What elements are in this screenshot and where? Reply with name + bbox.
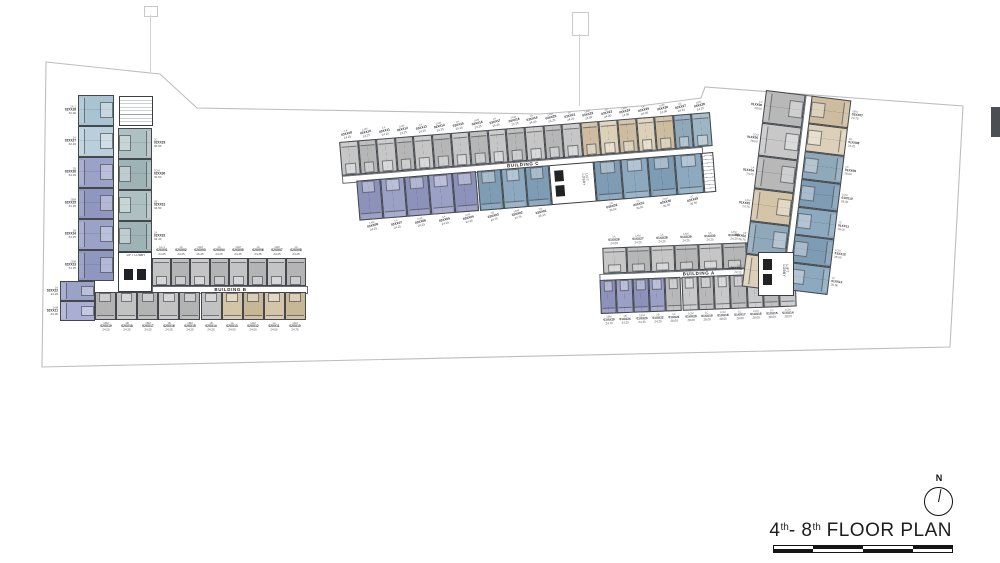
balcony-edge [838,130,847,154]
unit-label: 1AM02XX1224.00 [240,322,267,331]
bathroom-outline [660,138,671,149]
bathroom-outline [382,160,393,171]
balcony-edge [652,188,674,196]
unit-02XX04 [210,258,229,286]
bathroom-outline [697,135,708,146]
unit-02XX28 [78,95,114,126]
bathroom-outline [586,144,597,155]
unit-label: 1AM03XX0824.25 [359,218,387,234]
balcony-edge [146,162,151,188]
unit-02XX32 [118,221,152,252]
unit-label: 1CM01XX1628.00 [742,309,769,319]
balcony-edge [182,315,199,319]
balcony-edge [782,300,795,306]
balcony-edge [716,303,729,309]
unit-01XX04 [754,156,798,194]
unit-label: 1A02XX0424.25 [206,246,233,255]
unit-01XX24 [616,279,634,314]
unit-02XX05 [229,258,248,286]
balcony-edge [231,259,246,263]
unit-02XX03 [190,258,209,286]
unit-02XX12 [243,292,264,320]
bathroom-outline [99,293,111,302]
balcony-edge [146,193,151,219]
unit-label: 2B02XX2634.25 [49,168,76,177]
lift-lobby-label: LIFT LOBBY [581,173,589,193]
bathroom-outline [599,161,615,174]
bathroom-outline [512,150,523,161]
bathroom-outline [214,276,225,285]
unit-02XX23 [78,250,114,281]
unit-03XX32 [594,159,624,201]
bathroom-outline [626,159,642,172]
balcony-edge [564,124,579,130]
unit-01XX27 [626,246,651,273]
unit-label: 2C03XX3230.50 [597,199,625,215]
unit-label: 1A03XX0724.25 [383,216,411,232]
balcony-edge [341,142,356,148]
lift-lobby-label: LIFT LOBBY [127,254,146,258]
unit-label: 1C01XX1928.00 [693,311,720,321]
balcony-edge [529,198,549,205]
unit-03XX31 [620,157,650,199]
bathroom-outline [401,159,412,170]
unit-label: 2B02XX2434.25 [49,230,76,239]
unit-01XX03 [750,188,794,226]
bathroom-outline [679,136,690,147]
balcony-edge [656,116,671,122]
balcony-edge [79,191,85,217]
scale-bar [773,545,953,553]
balcony-edge [288,259,303,263]
bathroom-outline [247,293,259,302]
title-number: - 8 [789,520,813,541]
balcony-edge [700,303,713,309]
unit-label: 2C02XX2930.50 [154,139,181,148]
balcony-edge [693,113,708,119]
unit-label: 1CM01XX1828.00 [710,311,737,321]
unit-01XX18 [714,275,732,310]
unit-03XX30 [647,155,677,197]
unit-02XX15 [179,292,200,320]
balcony-edge [97,315,114,319]
unit-02XX01 [152,258,171,286]
unit-label: 1C01XX1728.00 [726,310,753,320]
lift-lobby-label: LIFT LOBBY [782,265,789,286]
unit-03XX08 [356,179,383,221]
unit-label: 1B02XX1624.25 [155,322,182,331]
balcony-edge [619,119,634,125]
bathroom-outline [567,145,578,156]
balcony-edge [224,315,241,319]
bathroom-outline [493,151,504,162]
bathroom-outline [772,231,788,249]
bathroom-outline [800,185,816,201]
balcony-edge [599,193,621,201]
unit-label: 1A03XX0524.25 [431,212,459,228]
bathroom-outline [345,163,356,174]
bathroom-outline [668,278,678,289]
bathroom-outline [632,263,646,272]
balcony-edge [269,259,284,263]
floor-plan-canvas: LIFT LOBBY BUILDING B 2A-102XX2832.002A0… [0,0,1000,563]
unit-label: 2BM02XX2334.25 [49,261,76,270]
bathroom-outline [156,276,167,285]
unit-label: 1A02XX1324.00 [219,322,246,331]
unit-label: 2BM02XX2534.25 [49,199,76,208]
unit-label: 2A-102XX2832.00 [49,106,76,115]
balcony-edge [679,186,701,194]
unit-03XX02 [500,167,527,209]
unit-label: 1BM02XX1924.25 [92,322,119,331]
balcony-edge [457,204,477,211]
bathroom-outline [549,147,560,158]
bathroom-outline [608,264,622,273]
unit-03XX03 [476,169,503,211]
balcony-edge [409,208,429,215]
bathroom-outline [226,293,238,302]
unit-02XX27 [78,126,114,157]
bathroom-outline [100,226,113,242]
building-b: LIFT LOBBY BUILDING B 2A-102XX2832.002A0… [0,0,1000,563]
bathroom-outline [796,213,812,229]
bathroom-outline [603,280,613,291]
bathroom-outline [142,293,154,302]
bathroom-outline [419,157,430,168]
bathroom-outline [636,279,646,290]
bathroom-outline [529,167,543,180]
bathroom-outline [119,197,131,213]
bathroom-outline [717,276,727,287]
balcony-edge [684,304,697,310]
unit-label: 1AM03XX0424.25 [455,210,483,226]
balcony-edge [747,224,757,252]
bathroom-outline [233,276,244,285]
bathroom-outline [793,241,809,257]
unit-label: 1A02XX0624.25 [244,246,271,255]
north-label: N [924,473,954,483]
balcony-edge [626,190,648,198]
balcony-edge [763,93,773,121]
unit-label: 2CM02XX3030.50 [154,170,181,179]
unit-02XX08 [286,258,305,286]
balcony-edge [378,139,393,145]
balcony-edge [841,102,850,126]
bathroom-outline [433,174,447,187]
bathroom-outline [438,156,449,167]
balcony-edge [725,243,745,248]
lift-icon [763,259,772,270]
balcony-edge [79,222,85,248]
bathroom-outline [780,166,796,184]
balcony-edge [61,303,67,319]
unit-label: 2A02XX2732.40 [49,137,76,146]
unit-01XX28 [650,245,675,272]
bathroom-outline [119,166,131,182]
unit-label: 1A02XX2224.25 [31,286,58,295]
bathroom-outline [776,198,792,216]
unit-02XX16 [158,292,179,320]
building-b-stair-core [119,96,153,126]
balcony-edge [635,306,648,312]
bathroom-outline [361,180,375,193]
unit-label: 1AM02XX2124.00 [31,306,58,315]
unit-03XX29 [674,153,704,195]
balcony-edge [824,241,833,265]
unit-03XX07 [380,177,407,219]
unit-02XX07 [267,258,286,286]
bathroom-outline [457,172,471,185]
unit-02XX31 [118,190,152,221]
unit-label: 1BM01XX2324.25 [628,314,655,324]
balcony-edge [605,248,625,253]
unit-label: 1AM02XX0724.25 [263,246,290,255]
bathroom-outline [81,306,94,317]
bathroom-outline [788,100,804,118]
bathroom-outline [385,178,399,191]
bathroom-outline [619,280,629,291]
balcony-edge [749,302,762,308]
bathroom-outline [475,153,486,164]
bathroom-outline [656,262,670,271]
balcony-edge [250,259,265,263]
unit-01XX23 [632,278,650,313]
bathroom-outline [701,277,711,288]
bathroom-outline [175,276,186,285]
balcony-edge [527,127,542,133]
balcony-edge [602,307,615,313]
unit-03XX05 [428,173,455,215]
bathroom-outline [652,279,662,290]
bathroom-outline [456,154,467,165]
balcony-edge [755,158,765,186]
balcony-edge [651,305,664,311]
balcony-edge [79,160,85,186]
unit-02XX11 [264,292,285,320]
unit-01XX26 [602,247,627,274]
floor-plan-title: 4th- 8th FLOOR PLAN [766,520,952,542]
unit-label: 1A02XX0224.25 [167,246,194,255]
balcony-edge [619,307,632,313]
building-c-lift-lobby: LIFT LOBBY [549,162,597,205]
balcony-edge [827,213,836,237]
bathroom-outline [481,171,495,184]
unit-02XX26 [78,157,114,188]
balcony-edge [508,128,523,134]
unit-01XX30 [698,243,723,270]
balcony-edge [675,115,690,121]
balcony-edge [821,269,830,293]
balcony-edge [146,224,151,250]
unit-02XX06 [248,258,267,286]
unit-02XX30 [118,159,152,190]
balcony-edge [287,315,304,319]
unit-label: 1B03XX0324.75 [479,209,507,225]
building-b-lift-lobby: LIFT LOBBY [118,252,152,292]
balcony-edge [160,315,177,319]
bathroom-outline [728,259,742,268]
balcony-edge [489,130,504,136]
balcony-edge [154,259,169,263]
unit-02XX29 [118,128,152,159]
unit-label: 1AM02XX0524.25 [225,246,252,255]
unit-label: 1CM01XX2028.00 [677,312,704,322]
unit-02XX24 [78,219,114,250]
north-arrow-icon [924,487,953,516]
balcony-edge [360,140,375,146]
bathroom-outline [100,133,113,149]
unit-label: 1B02XX1424.25 [198,322,225,331]
balcony-edge [582,122,597,128]
balcony-edge [397,137,412,143]
balcony-edge [385,210,405,217]
balcony-edge [146,131,151,157]
balcony-edge [834,158,843,182]
bathroom-outline [704,260,718,269]
balcony-edge [545,125,560,131]
balcony-edge [79,129,85,155]
bathroom-outline [194,276,205,285]
lift-icon [554,170,564,182]
bathroom-outline [119,228,131,244]
unit-02XX25 [78,188,114,219]
balcony-edge [638,118,653,124]
unit-label: 1B01XX2424.25 [612,314,639,324]
unit-label: 1C01XX2128.00 [661,313,688,323]
bathroom-outline [784,133,800,151]
balcony-edge [434,134,449,140]
balcony-edge [433,206,453,213]
bathroom-outline [409,176,423,189]
unit-02XX17 [137,292,158,320]
unit-02XX19 [95,292,116,320]
unit-01XX05 [758,123,802,161]
unit-03XX04 [452,171,479,213]
unit-01XX25 [600,279,618,314]
bathroom-outline [100,102,113,118]
bathroom-outline [530,148,541,159]
bathroom-outline [271,276,282,285]
bathroom-outline [100,257,113,273]
bathroom-outline [100,164,113,180]
bathroom-outline [163,293,175,302]
bathroom-outline [290,276,301,285]
building-a-lift-lobby: LIFT LOBBY [758,252,794,296]
balcony-edge [677,245,697,250]
unit-02XX10 [285,292,306,320]
bathroom-outline [623,141,634,152]
bathroom-outline [289,293,301,302]
bathroom-outline [680,154,696,167]
bathroom-outline [803,157,819,173]
title-number: 4 [769,520,780,541]
unit-02XX14 [201,292,222,320]
balcony-edge [139,315,156,319]
bathroom-outline [205,293,217,302]
balcony-edge [266,315,283,319]
unit-label: 1A-102XX0124.25 [148,246,175,255]
balcony-edge [192,259,207,263]
unit-label: 2C03XX2930.50 [678,192,706,208]
unit-label: 1AM03XX0624.25 [407,214,435,230]
balcony-edge [629,247,649,252]
unit-label: 1CM01XX1428.00 [775,308,802,318]
bathroom-outline [81,286,94,297]
lift-icon [124,269,133,280]
unit-label: 1C01XX1528.00 [758,309,785,319]
bathroom-outline [642,139,653,150]
unit-02XX22 [60,281,95,301]
balcony-edge [751,191,761,219]
unit-02XX21 [60,301,95,321]
unit-label: 2B03XX0126.25 [527,205,555,221]
balcony-edge [668,305,681,311]
unit-02XX18 [116,292,137,320]
unit-02XX02 [171,258,190,286]
bathroom-outline [604,142,615,153]
unit-label: 1BM02XX1524.25 [176,322,203,331]
balcony-edge [79,253,85,279]
unit-label: 2C03XX3130.50 [624,197,652,213]
bathroom-outline [268,293,280,302]
bathroom-outline [505,169,519,182]
bathroom-outline [121,293,133,302]
balcony-edge [601,121,616,127]
balcony-edge [759,126,769,154]
balcony-edge [245,315,262,319]
balcony-edge [361,212,381,219]
balcony-edge [831,185,840,209]
balcony-edge [173,259,188,263]
title-text: FLOOR PLAN [821,520,952,541]
unit-01XX06 [762,90,806,128]
bathroom-outline [100,195,113,211]
unit-03XX01 [524,165,551,207]
balcony-edge [79,98,85,124]
balcony-edge [118,315,135,319]
unit-03XX28 [691,112,712,147]
lift-icon [555,185,565,197]
lift-icon [137,269,146,280]
bathroom-outline [184,293,196,302]
unit-label: 1B02XX1824.25 [113,322,140,331]
bathroom-outline [252,276,263,285]
bathroom-outline [363,162,374,173]
unit-01XX20 [681,276,699,311]
balcony-edge [653,246,673,251]
balcony-edge [203,315,220,319]
bathroom-outline [680,261,694,270]
balcony-edge [481,202,501,209]
balcony-edge [743,257,753,285]
unit-03XX06 [404,175,431,217]
balcony-edge [415,136,430,142]
unit-01XX22 [648,277,666,312]
balcony-edge [701,244,721,249]
balcony-edge [212,259,227,263]
lift-icon [763,274,772,285]
balcony-edge [61,283,67,299]
unit-label: 1BM02XX1724.25 [134,322,161,331]
balcony-edge [505,200,525,207]
unit-label: 1AM02XX0326.25 [187,246,214,255]
unit-label: 2CM03XX3030.50 [651,195,679,211]
unit-label: 1AM02XX1024.75 [282,322,309,331]
unit-label: 2B02XX3134.50 [154,201,181,210]
title-sup: th [780,522,788,533]
bathroom-outline [119,135,131,151]
unit-label: 2A02XX3232.40 [154,232,181,241]
